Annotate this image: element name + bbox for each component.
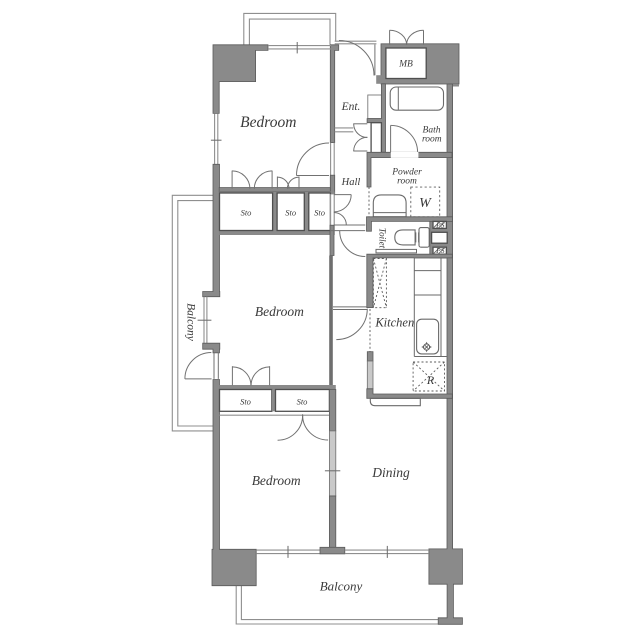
svg-text:Sto: Sto bbox=[314, 208, 325, 218]
svg-text:MB: MB bbox=[398, 60, 413, 70]
svg-text:Sto: Sto bbox=[240, 397, 251, 407]
svg-text:Bedroom: Bedroom bbox=[255, 304, 304, 319]
svg-text:Balcony: Balcony bbox=[184, 303, 196, 342]
svg-text:Hall: Hall bbox=[341, 177, 361, 188]
svg-text:Toilet: Toilet bbox=[377, 228, 387, 249]
svg-text:R: R bbox=[426, 373, 435, 387]
svg-text:W: W bbox=[419, 196, 432, 211]
svg-text:room: room bbox=[422, 135, 442, 145]
svg-text:Sto: Sto bbox=[241, 208, 252, 218]
svg-text:Dining: Dining bbox=[371, 465, 410, 480]
svg-text:Sto: Sto bbox=[297, 397, 308, 407]
svg-text:Sto: Sto bbox=[285, 208, 296, 218]
svg-text:Kitchen: Kitchen bbox=[374, 316, 414, 330]
svg-text:Bedroom: Bedroom bbox=[252, 473, 301, 488]
svg-text:PS: PS bbox=[435, 220, 445, 229]
svg-text:room: room bbox=[397, 177, 417, 187]
svg-text:Balcony: Balcony bbox=[320, 579, 363, 594]
svg-text:Ent.: Ent. bbox=[341, 101, 361, 113]
svg-text:Bedroom: Bedroom bbox=[240, 114, 296, 131]
